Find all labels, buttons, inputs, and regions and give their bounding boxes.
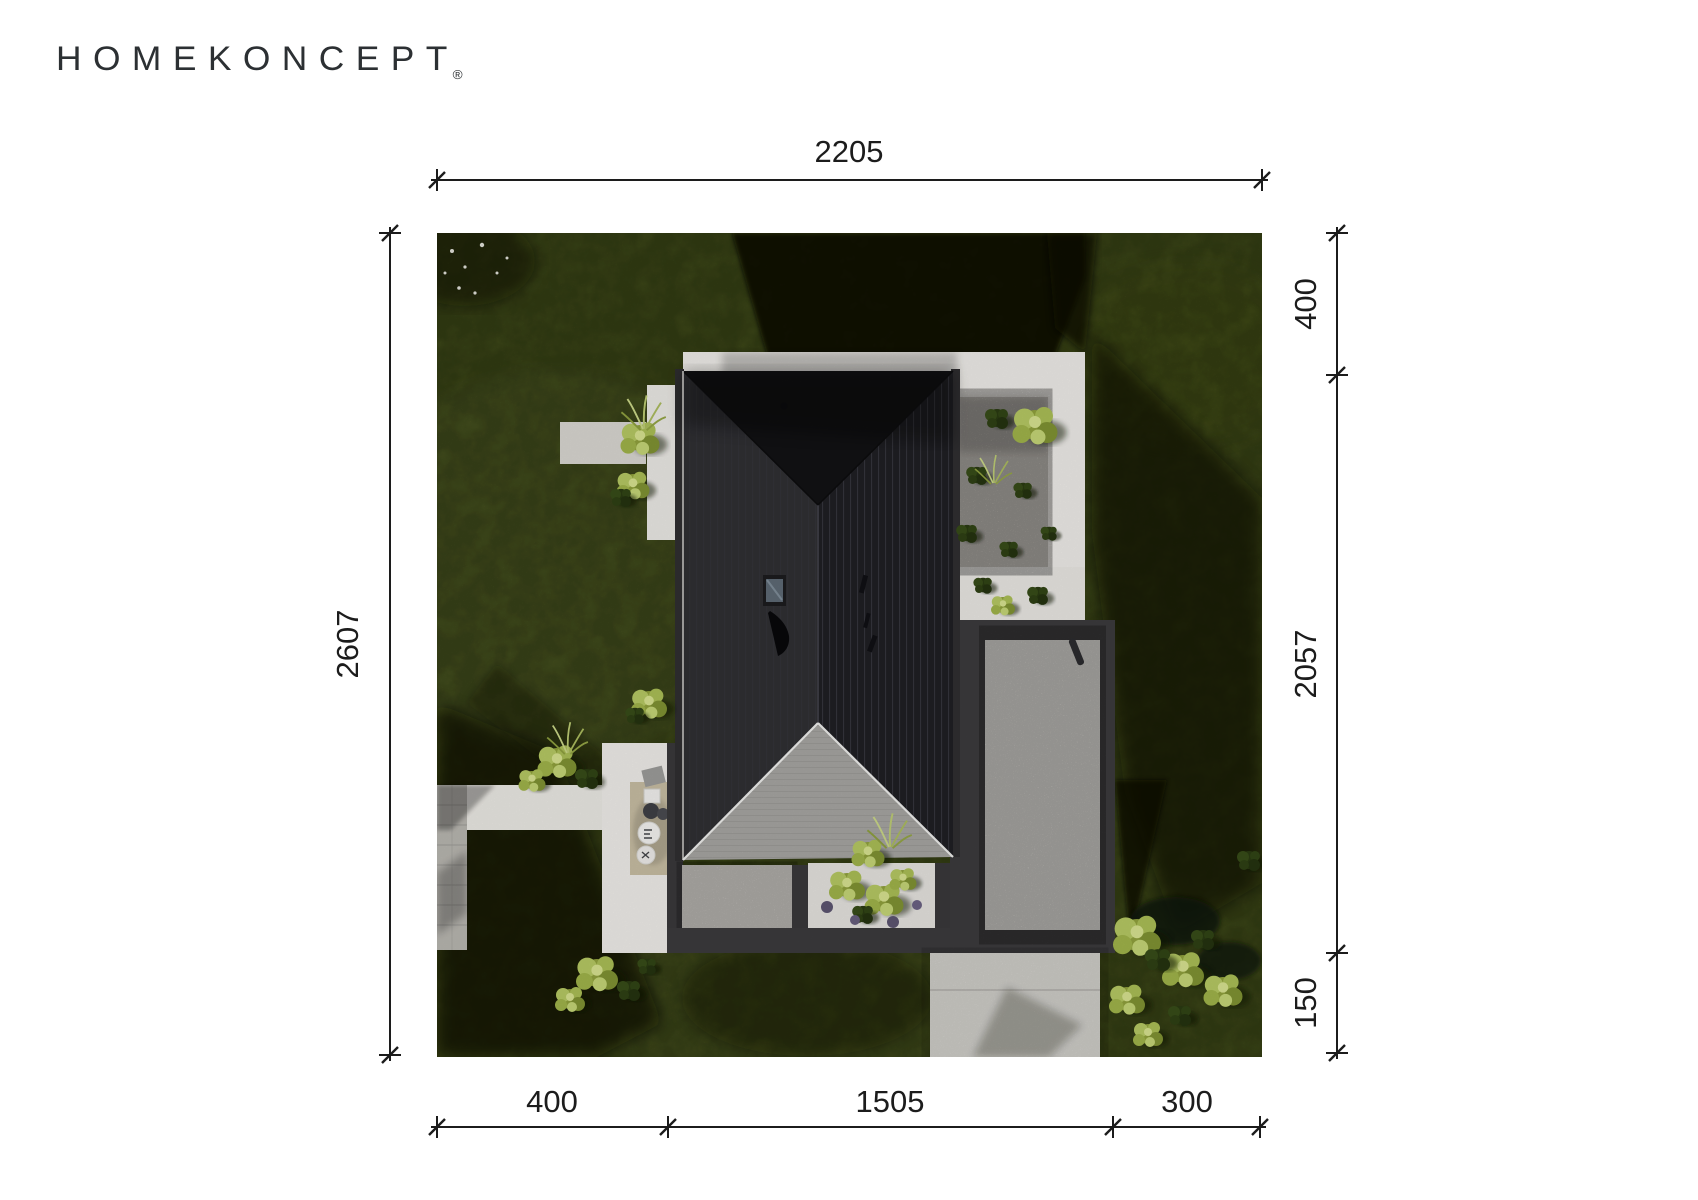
film-grain-overlay xyxy=(437,233,1262,1057)
brand-logo: HOMEKONCEPT® xyxy=(56,40,469,79)
dimension-label-right-middle: 2057 xyxy=(1288,630,1323,699)
dimension-label-bottom-left: 400 xyxy=(526,1084,578,1119)
site-photo-render xyxy=(437,233,1262,1057)
dimension-label-right-top: 400 xyxy=(1288,278,1323,330)
brand-logo-text: HOMEKONCEPT xyxy=(56,40,459,78)
dimension-label-left: 2607 xyxy=(330,610,365,679)
dimension-label-right-bottom: 150 xyxy=(1288,977,1323,1029)
dimension-label-bottom-right: 300 xyxy=(1161,1084,1213,1119)
site-plan-page: HOMEKONCEPT® xyxy=(0,0,1698,1200)
dimension-label-top: 2205 xyxy=(815,134,884,169)
dimension-label-bottom-middle: 1505 xyxy=(856,1084,925,1119)
site-photo xyxy=(437,233,1262,1057)
registered-trademark-symbol: ® xyxy=(453,67,463,82)
